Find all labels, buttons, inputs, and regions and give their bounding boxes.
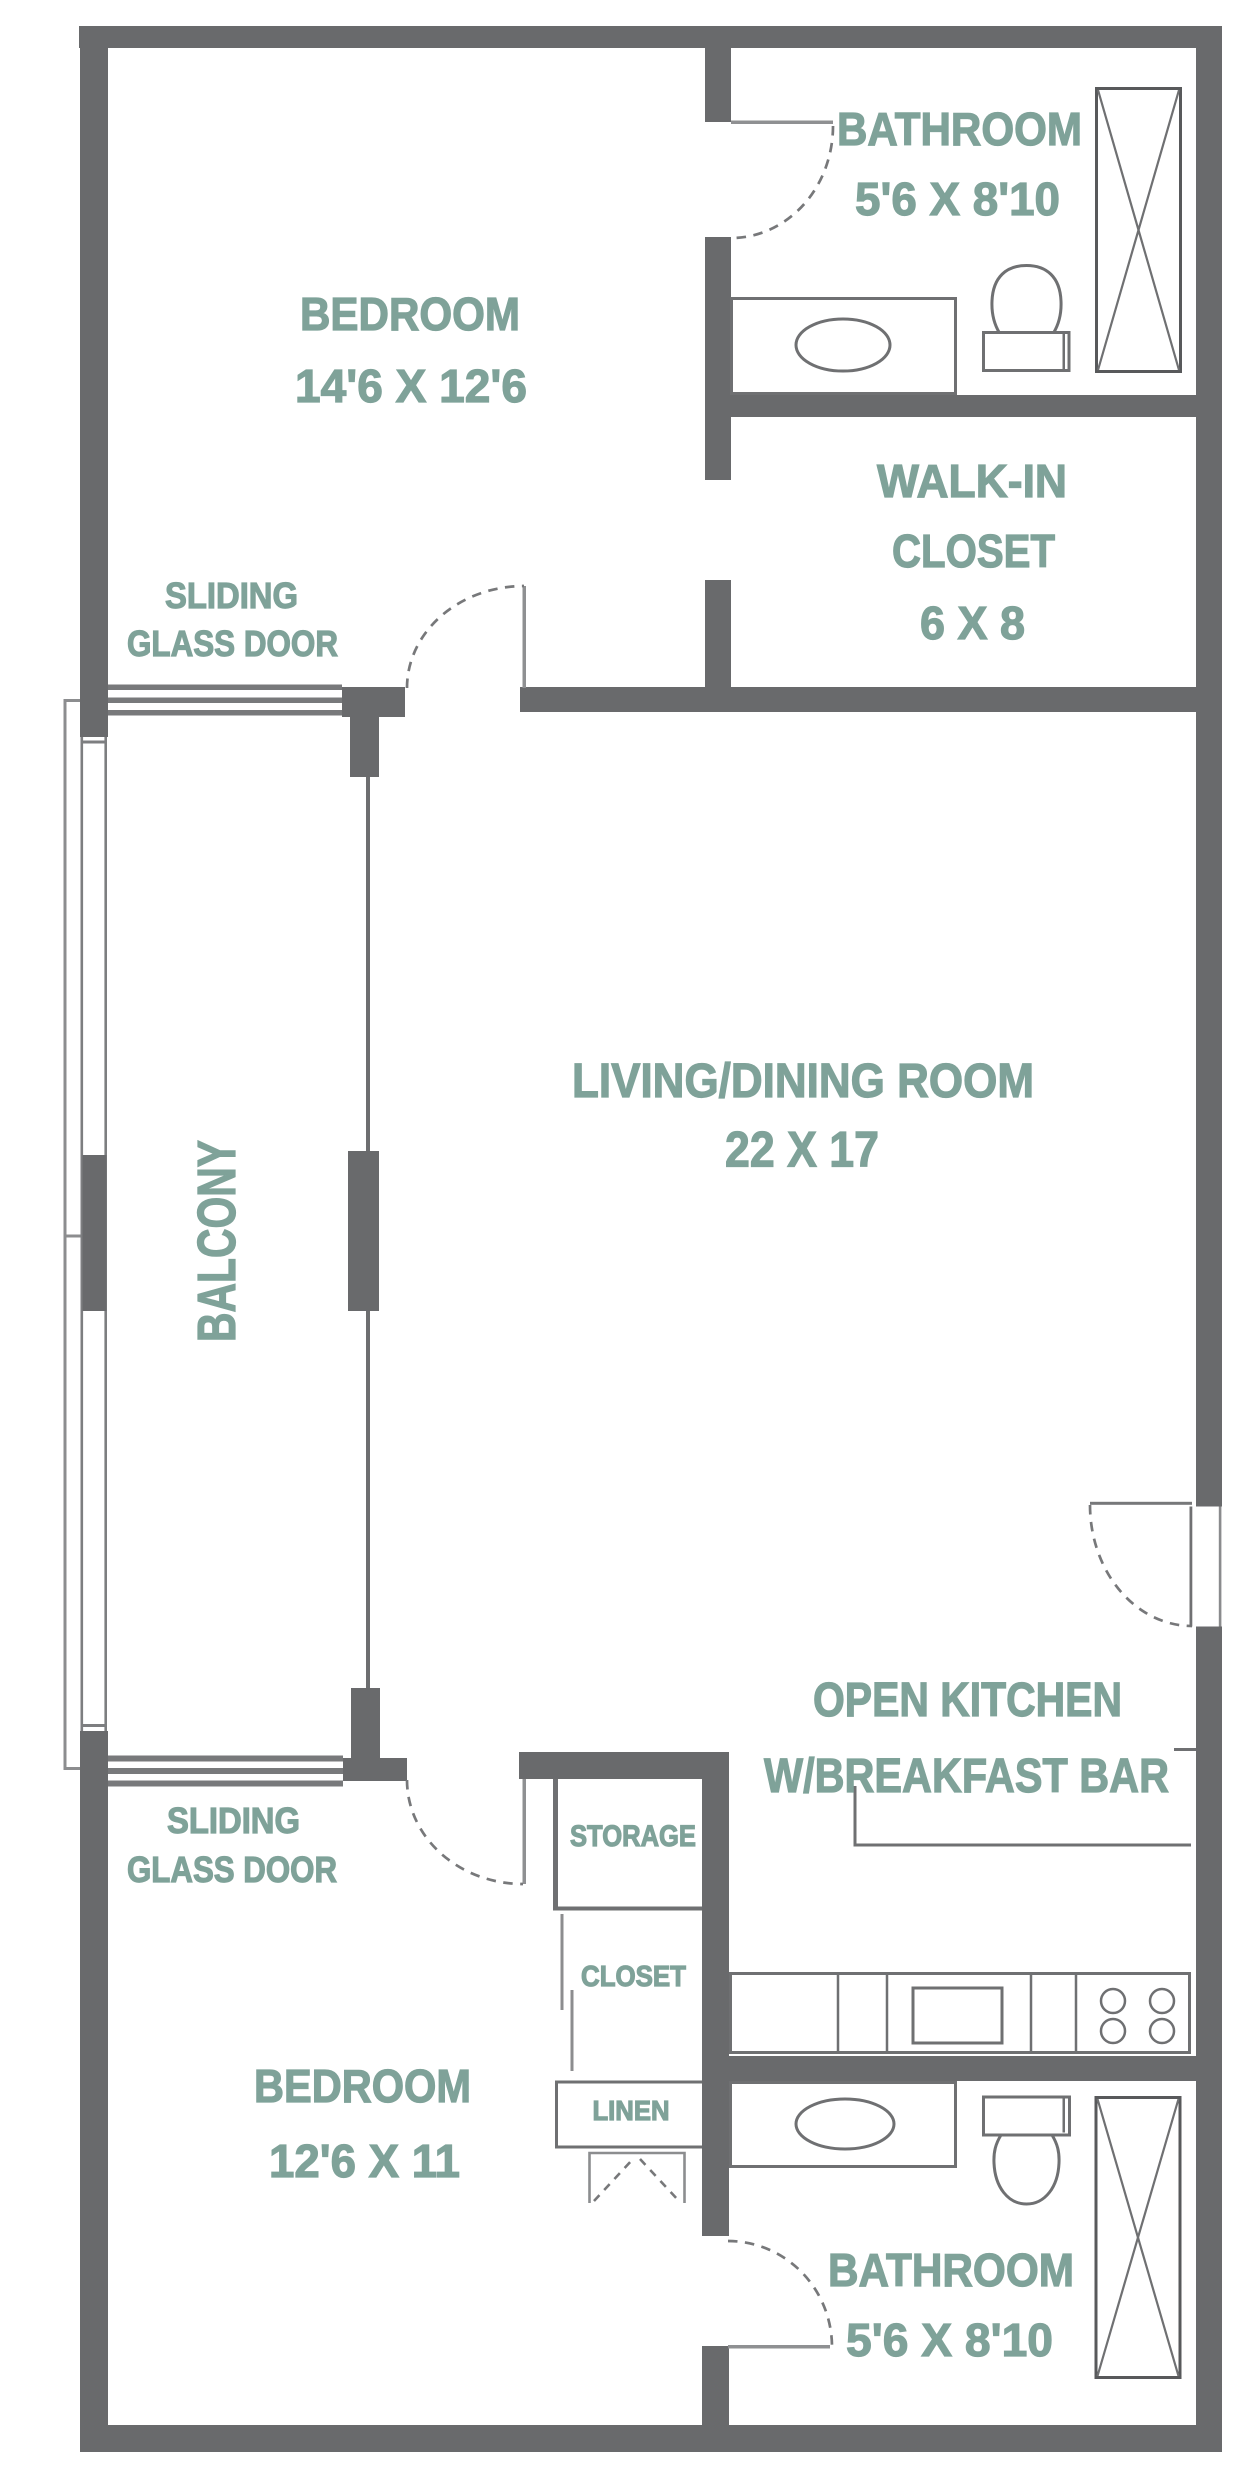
svg-text:LIVING/DINING ROOM: LIVING/DINING ROOM bbox=[572, 1055, 1034, 1108]
svg-text:SLIDING: SLIDING bbox=[167, 1800, 300, 1841]
svg-text:CLOSET: CLOSET bbox=[581, 1961, 686, 1993]
svg-text:CLOSET: CLOSET bbox=[892, 525, 1055, 577]
svg-text:BALCONY: BALCONY bbox=[187, 1140, 247, 1342]
svg-text:22 X 17: 22 X 17 bbox=[725, 1122, 879, 1178]
svg-text:OPEN KITCHEN: OPEN KITCHEN bbox=[813, 1674, 1122, 1727]
svg-text:BATHROOM: BATHROOM bbox=[828, 2244, 1074, 2296]
svg-text:BEDROOM: BEDROOM bbox=[300, 288, 520, 340]
svg-text:GLASS DOOR: GLASS DOOR bbox=[127, 1849, 337, 1890]
svg-text:LINEN: LINEN bbox=[593, 2095, 670, 2126]
svg-text:6 X 8: 6 X 8 bbox=[920, 597, 1025, 649]
svg-text:BATHROOM: BATHROOM bbox=[837, 103, 1082, 155]
svg-text:12'6 X 11: 12'6 X 11 bbox=[269, 2135, 460, 2187]
svg-text:W/BREAKFAST BAR: W/BREAKFAST BAR bbox=[764, 1750, 1169, 1803]
svg-text:SLIDING: SLIDING bbox=[165, 575, 298, 616]
svg-text:GLASS DOOR: GLASS DOOR bbox=[127, 623, 338, 664]
svg-text:BEDROOM: BEDROOM bbox=[254, 2060, 471, 2112]
svg-text:5'6 X 8'10: 5'6 X 8'10 bbox=[846, 2314, 1053, 2366]
svg-text:14'6 X 12'6: 14'6 X 12'6 bbox=[295, 360, 527, 412]
svg-text:5'6 X 8'10: 5'6 X 8'10 bbox=[855, 173, 1060, 225]
svg-text:STORAGE: STORAGE bbox=[570, 1820, 696, 1853]
svg-text:WALK-IN: WALK-IN bbox=[877, 455, 1067, 507]
